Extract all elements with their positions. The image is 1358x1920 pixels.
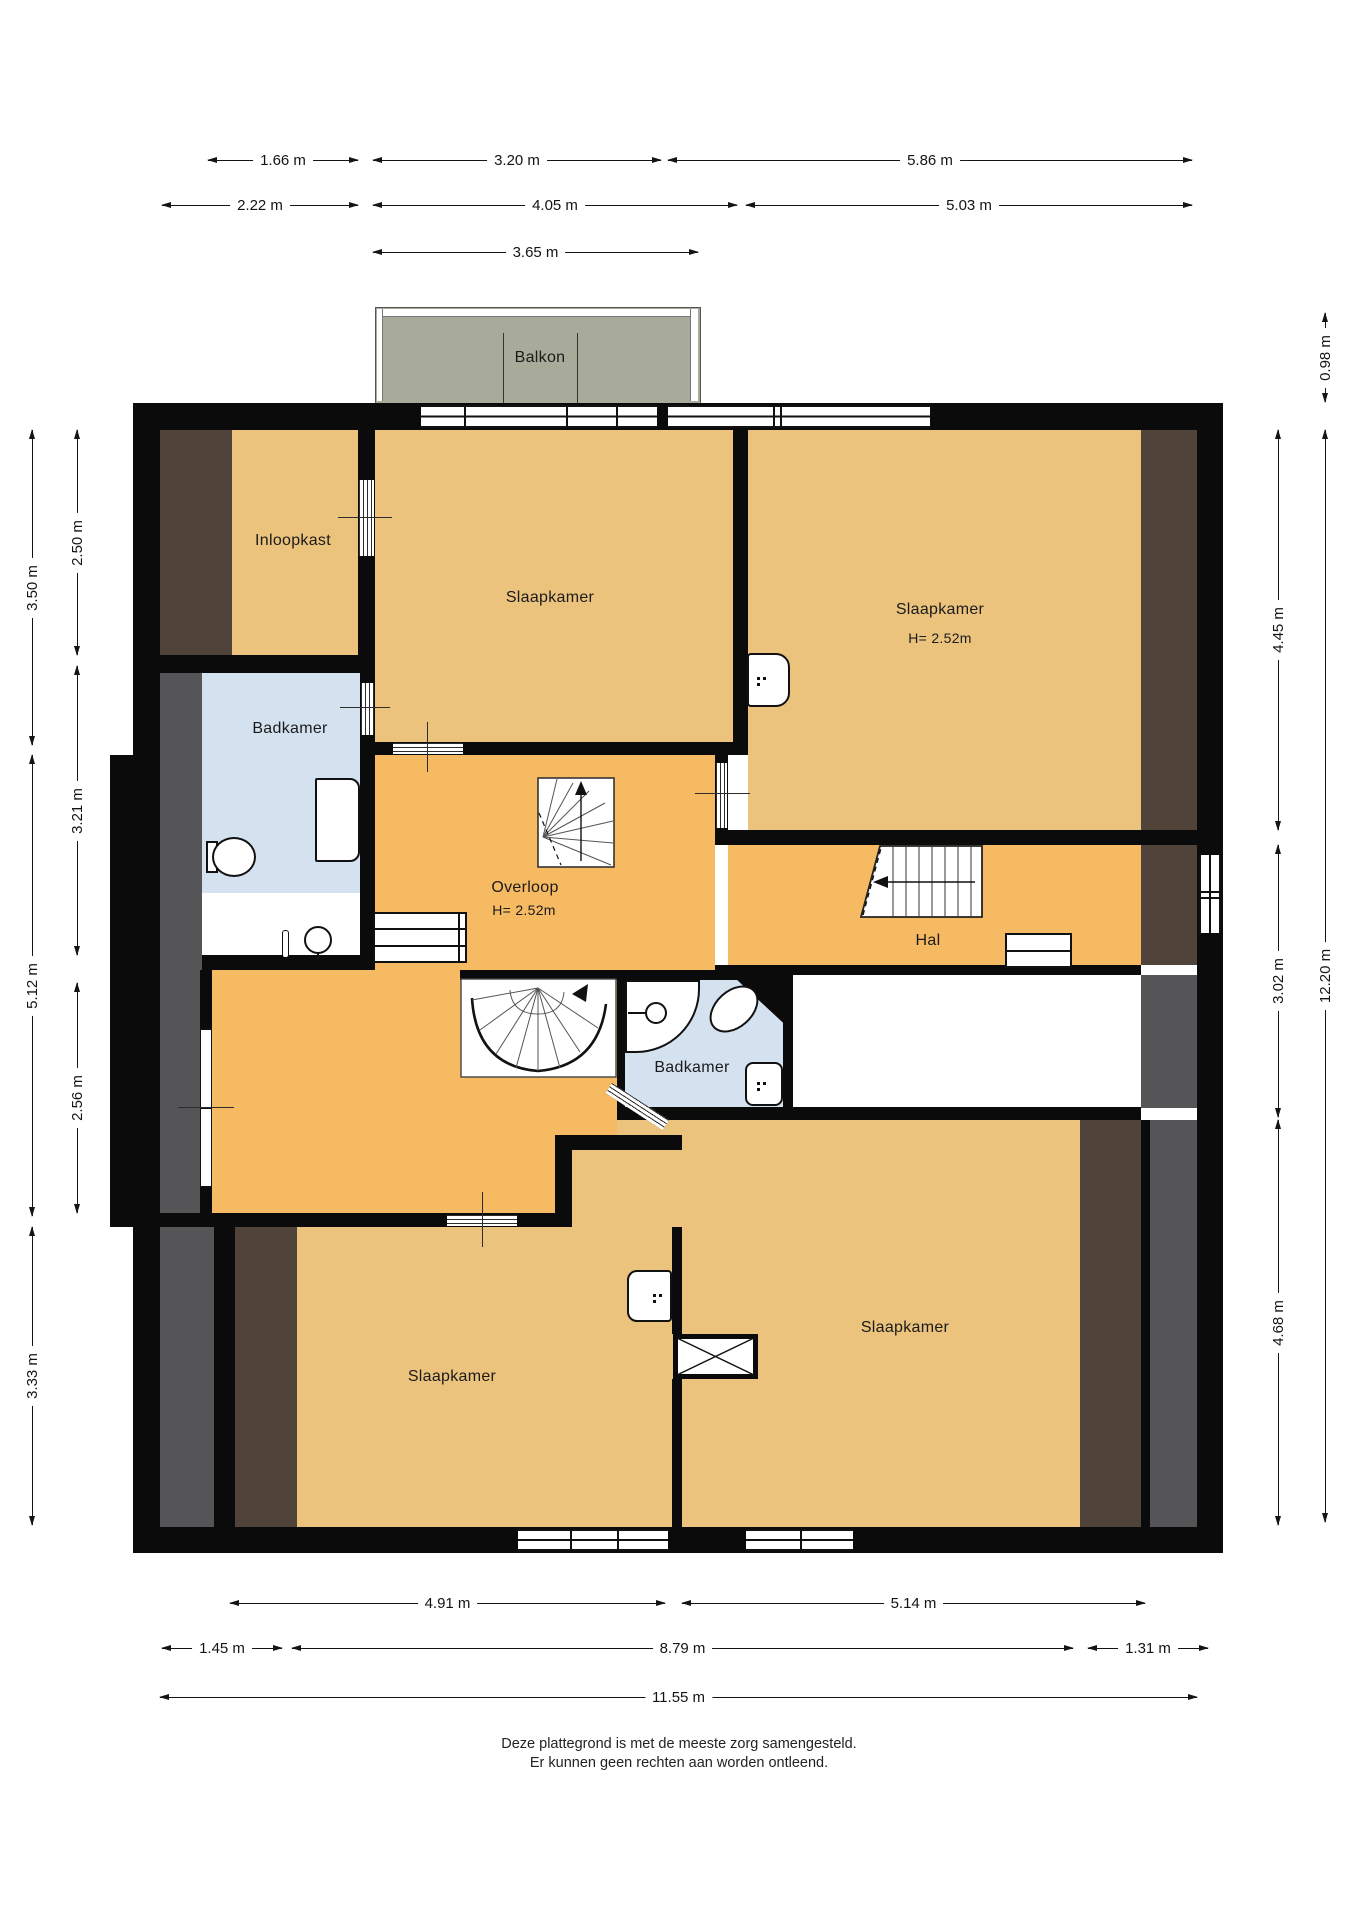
- footer-disclaimer-line2: Er kunnen geen rechten aan worden ontlee…: [0, 1755, 1358, 1771]
- shaft-icon: [673, 1334, 758, 1379]
- room-label-inloopkast: Inloopkast: [255, 532, 331, 550]
- bath-accessory-icon: [282, 930, 289, 958]
- room-height-label: H= 2.52m: [492, 902, 556, 918]
- door-tick: [338, 517, 392, 518]
- window-interior: [200, 1028, 212, 1188]
- dimension: 5.14 m: [682, 1603, 1145, 1604]
- wall: [202, 955, 375, 970]
- room-label-overloop: Overloop: [491, 879, 558, 897]
- room-height-label: H= 2.52m: [908, 630, 972, 646]
- dimension: 11.55 m: [160, 1697, 1197, 1698]
- wall: [1141, 1120, 1150, 1527]
- dimension: 3.33 m: [32, 1227, 33, 1525]
- dimension: 3.50 m: [32, 430, 33, 745]
- pedestal-sink-stem: [317, 953, 319, 962]
- dimension: 8.79 m: [292, 1648, 1073, 1649]
- window-tick: [482, 1192, 483, 1247]
- low-headroom-strip: [160, 1227, 214, 1527]
- wall: [783, 1107, 1141, 1120]
- sloped-roof-strip: [1080, 1120, 1141, 1527]
- window: [421, 405, 657, 428]
- shower-arm: [628, 1012, 646, 1014]
- room-label-slaapkamer: Slaapkamer: [896, 601, 984, 619]
- room-label-slaapkamer: Slaapkamer: [408, 1368, 496, 1386]
- void-area: [793, 975, 1141, 1107]
- sink-icon: [745, 1062, 783, 1106]
- dimension: 4.45 m: [1278, 430, 1279, 830]
- door: [361, 683, 374, 735]
- wall-left: [133, 1227, 160, 1553]
- balcony-door-line: [503, 333, 504, 403]
- dimension: 1.45 m: [162, 1648, 282, 1649]
- wall: [555, 1135, 572, 1213]
- door-tick: [695, 793, 750, 794]
- dimension: 1.31 m: [1088, 1648, 1208, 1649]
- low-headroom-strip: [1150, 1120, 1197, 1527]
- dimension: 2.50 m: [77, 430, 78, 655]
- low-headroom-strip: [160, 673, 202, 1213]
- sink-icon: [627, 1270, 672, 1322]
- washbasin-cabinet-icon: [315, 778, 360, 862]
- dimension: 5.86 m: [668, 160, 1192, 161]
- low-headroom-strip: [1141, 975, 1197, 1108]
- door: [359, 480, 374, 556]
- window: [746, 1529, 853, 1551]
- sloped-roof-strip: [235, 1227, 297, 1527]
- footer-disclaimer-line1: Deze plattegrond is met de meeste zorg s…: [0, 1736, 1358, 1752]
- door: [716, 763, 727, 828]
- room-notch: [572, 1150, 682, 1227]
- sink-icon: [747, 653, 790, 707]
- room-label-badkamer: Badkamer: [654, 1059, 729, 1077]
- pedestal-sink-icon: [304, 926, 332, 954]
- dimension: 3.20 m: [373, 160, 661, 161]
- window: [1199, 855, 1221, 933]
- wall: [715, 830, 1197, 845]
- room-label-balkon: Balkon: [515, 349, 566, 367]
- wall: [200, 1188, 212, 1213]
- balcony-frame-right: [690, 309, 698, 401]
- wall-left: [110, 755, 160, 1227]
- wall: [572, 1135, 682, 1150]
- room-label-hal: Hal: [916, 932, 941, 950]
- wall: [733, 430, 748, 755]
- sloped-roof-strip: [1141, 430, 1197, 965]
- door-tick: [427, 722, 428, 772]
- window-tick: [178, 1107, 234, 1108]
- badkamer-left-shower-zone: [202, 893, 360, 955]
- toilet-icon: [212, 837, 256, 877]
- dimension: 3.02 m: [1278, 845, 1279, 1117]
- floorplan-canvas: Balkon Inloopkast Slaapkamer Slaapkamer …: [0, 0, 1358, 1920]
- dimension: 5.03 m: [746, 205, 1192, 206]
- stairs-down-icon: [860, 845, 983, 918]
- wall-left: [133, 403, 160, 755]
- sloped-roof-strip: [160, 430, 232, 655]
- dimension: 1.66 m: [208, 160, 358, 161]
- dimension: 0.98 m: [1325, 313, 1326, 402]
- balcony-door-line: [577, 333, 578, 403]
- spiral-stairs-icon: [460, 978, 617, 1078]
- dimension: 12.20 m: [1325, 430, 1326, 1522]
- radiator-icon: [373, 912, 467, 963]
- dimension: 4.91 m: [230, 1603, 665, 1604]
- window: [518, 1529, 668, 1551]
- wall-right: [1197, 403, 1223, 1553]
- balcony-frame: [377, 309, 697, 317]
- dimension: 3.21 m: [77, 666, 78, 955]
- wall: [672, 1227, 682, 1334]
- room-slaapkamer-top-middle: [373, 430, 733, 742]
- stairs-up-icon: [537, 777, 615, 868]
- room-label-badkamer: Badkamer: [252, 720, 327, 738]
- dimension: 3.65 m: [373, 252, 698, 253]
- wall: [200, 970, 212, 1028]
- window: [668, 405, 930, 428]
- radiator-icon: [1005, 933, 1072, 968]
- dimension: 4.68 m: [1278, 1120, 1279, 1525]
- wall: [672, 1379, 682, 1527]
- door-tick: [340, 707, 390, 708]
- wall: [133, 655, 375, 673]
- room-overloop-extension: [202, 1135, 555, 1213]
- room-label-slaapkamer: Slaapkamer: [861, 1319, 949, 1337]
- dimension: 2.56 m: [77, 983, 78, 1213]
- wall: [214, 1227, 235, 1527]
- dimension: 4.05 m: [373, 205, 737, 206]
- shower-head-icon: [645, 1002, 667, 1024]
- door: [393, 743, 463, 754]
- dimension: 5.12 m: [32, 755, 33, 1216]
- wall-bottom: [133, 1527, 1223, 1553]
- balcony-frame-left: [377, 309, 383, 401]
- room-label-slaapkamer: Slaapkamer: [506, 589, 594, 607]
- dimension: 2.22 m: [162, 205, 358, 206]
